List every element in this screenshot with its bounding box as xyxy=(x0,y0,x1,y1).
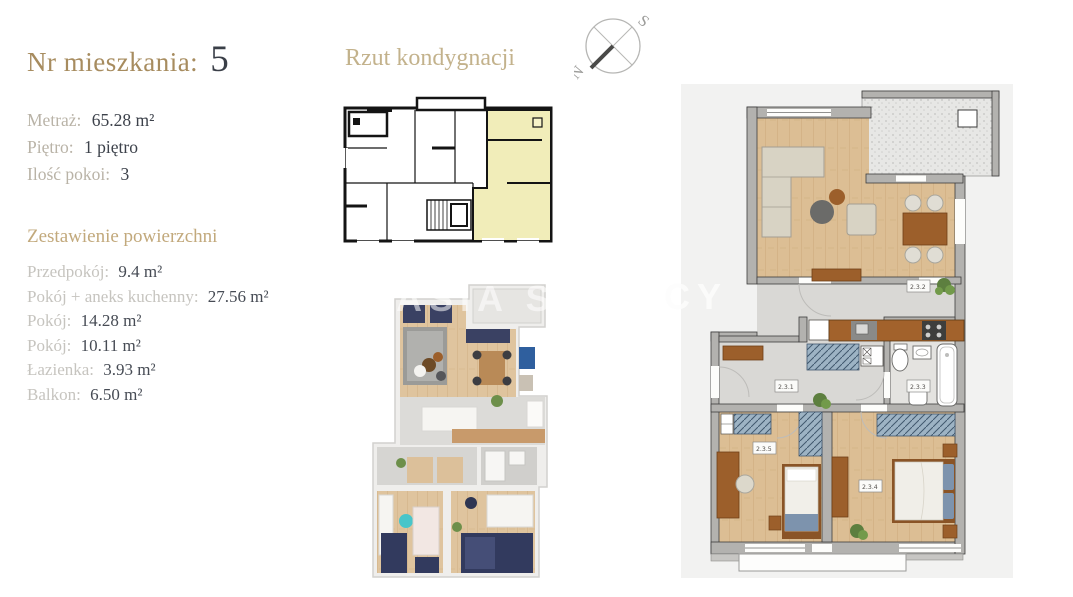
areas-heading: Zestawienie powierzchni xyxy=(27,226,327,248)
terrace xyxy=(862,91,999,176)
compass-south-label: S xyxy=(634,12,652,31)
area-row-pokoj-2: Pokój: 10.11 m² xyxy=(27,334,327,359)
render-3d xyxy=(373,285,547,577)
area-label: Pokój: xyxy=(27,336,71,355)
room-label-bedroom-second: 2.3.5 xyxy=(756,446,772,453)
detail-plan-drawing: 2.3.2 2.3.1 2.3.3 2.3.4 2.3.5 xyxy=(681,84,1013,578)
apartment-info-panel: Nr mieszkania: 5 Metraż: 65.28 m² Piętro… xyxy=(27,38,327,408)
detail-label: Ilość pokoi: xyxy=(27,164,110,184)
compass-icon: S N xyxy=(574,2,652,90)
area-label: Pokój + aneks kuchenny: xyxy=(27,287,199,306)
apartment-number-label: Nr mieszkania: xyxy=(27,47,198,77)
detail-label: Metraż: xyxy=(27,110,81,130)
detail-value: 3 xyxy=(121,164,130,184)
area-value: 6.50 m² xyxy=(90,385,142,404)
area-label: Łazienka: xyxy=(27,360,94,379)
area-row-balkon: Balkon: 6.50 m² xyxy=(27,383,327,408)
floor-plan-heading: Rzut kondygnacji xyxy=(345,45,515,72)
area-row-pokoj-aneks: Pokój + aneks kuchenny: 27.56 m² xyxy=(27,285,327,310)
storey-plan xyxy=(337,88,562,246)
area-row-pokoj-1: Pokój: 14.28 m² xyxy=(27,309,327,334)
area-row-przedpokoj: Przedpokój: 9.4 m² xyxy=(27,260,327,285)
detail-row-metraz: Metraż: 65.28 m² xyxy=(27,107,327,134)
area-label: Balkon: xyxy=(27,385,81,404)
brochure-page: { "apartment": { "title_label": "Nr mies… xyxy=(0,0,1073,597)
room-label-bathroom: 2.3.3 xyxy=(910,384,926,391)
compass-north-label: N xyxy=(574,62,588,82)
detail-value: 65.28 m² xyxy=(92,110,155,130)
detail-row-pokoje: Ilość pokoi: 3 xyxy=(27,161,327,188)
detail-row-pietro: Piętro: 1 piętro xyxy=(27,134,327,161)
area-value: 27.56 m² xyxy=(208,287,269,306)
area-label: Przedpokój: xyxy=(27,262,109,281)
floor-plan-3d-render xyxy=(367,281,549,581)
areas-list: Przedpokój: 9.4 m² Pokój + aneks kuchenn… xyxy=(27,260,327,408)
area-value: 14.28 m² xyxy=(81,311,142,330)
area-row-lazienka: Łazienka: 3.93 m² xyxy=(27,358,327,383)
room-label-living: 2.3.2 xyxy=(910,284,926,291)
staircase xyxy=(427,200,471,230)
apartment-number-value: 5 xyxy=(210,39,229,80)
area-value: 3.93 m² xyxy=(103,360,155,379)
room-label-bedroom-main: 2.3.4 xyxy=(862,484,878,491)
kitchen xyxy=(809,320,964,341)
detail-value: 1 piętro xyxy=(84,137,138,157)
area-value: 10.11 m² xyxy=(81,336,141,355)
apartment-details: Metraż: 65.28 m² Piętro: 1 piętro Ilość … xyxy=(27,107,327,188)
area-label: Pokój: xyxy=(27,311,71,330)
area-value: 9.4 m² xyxy=(118,262,162,281)
apartment-detail-plan: 2.3.2 2.3.1 2.3.3 2.3.4 2.3.5 xyxy=(681,84,1013,578)
page-title: Nr mieszkania: 5 xyxy=(27,38,327,81)
storey-plan-drawing xyxy=(343,98,551,243)
room-label-hall: 2.3.1 xyxy=(778,384,794,391)
balcony-outline xyxy=(739,554,906,571)
detail-label: Piętro: xyxy=(27,137,74,157)
